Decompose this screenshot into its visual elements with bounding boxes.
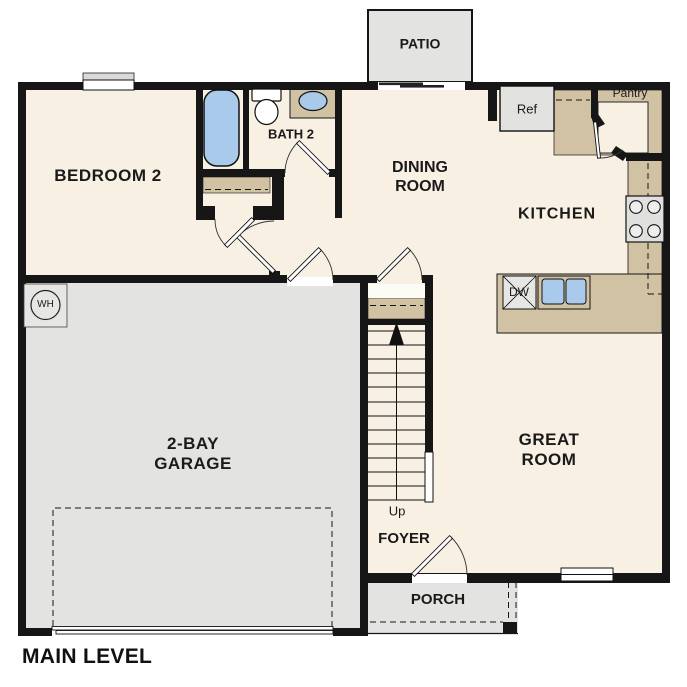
up-label: Up — [389, 503, 406, 518]
floor-plan-drawing — [0, 0, 687, 687]
floor-plan: PATIO BEDROOM 2 BATH 2 DINING ROOM KITCH… — [0, 0, 687, 687]
dw-label: DW — [509, 285, 529, 299]
stair-closet-threshold — [368, 284, 425, 298]
stove-icon — [626, 196, 664, 242]
garage-label: 2-BAY GARAGE — [138, 434, 248, 474]
porch-label: PORCH — [411, 591, 465, 609]
ref-label: Ref — [517, 101, 537, 116]
bath2-label: BATH 2 — [268, 126, 314, 141]
great-room-window — [561, 568, 613, 581]
bedroom-window — [83, 73, 134, 90]
wh-label: WH — [37, 299, 54, 311]
bathtub-icon — [204, 90, 239, 166]
toilet-icon — [252, 89, 281, 125]
patio-label: PATIO — [400, 36, 441, 53]
dining-room-label: DINING ROOM — [374, 159, 466, 197]
garage-overhead-door — [52, 626, 333, 636]
front-door-threshold — [412, 574, 467, 583]
great-room-label: GREAT ROOM — [499, 430, 599, 470]
plan-title: MAIN LEVEL — [22, 645, 152, 669]
foyer-label: FOYER — [378, 530, 430, 548]
pantry-label: Pantry — [613, 86, 648, 100]
patio-sliding-door — [378, 82, 465, 90]
kitchen-sink-icon — [538, 276, 590, 309]
stair-railing — [425, 452, 433, 502]
bath-sink-icon — [299, 92, 327, 111]
kitchen-label: KITCHEN — [518, 206, 596, 225]
bedroom2-label: BEDROOM 2 — [54, 166, 161, 186]
